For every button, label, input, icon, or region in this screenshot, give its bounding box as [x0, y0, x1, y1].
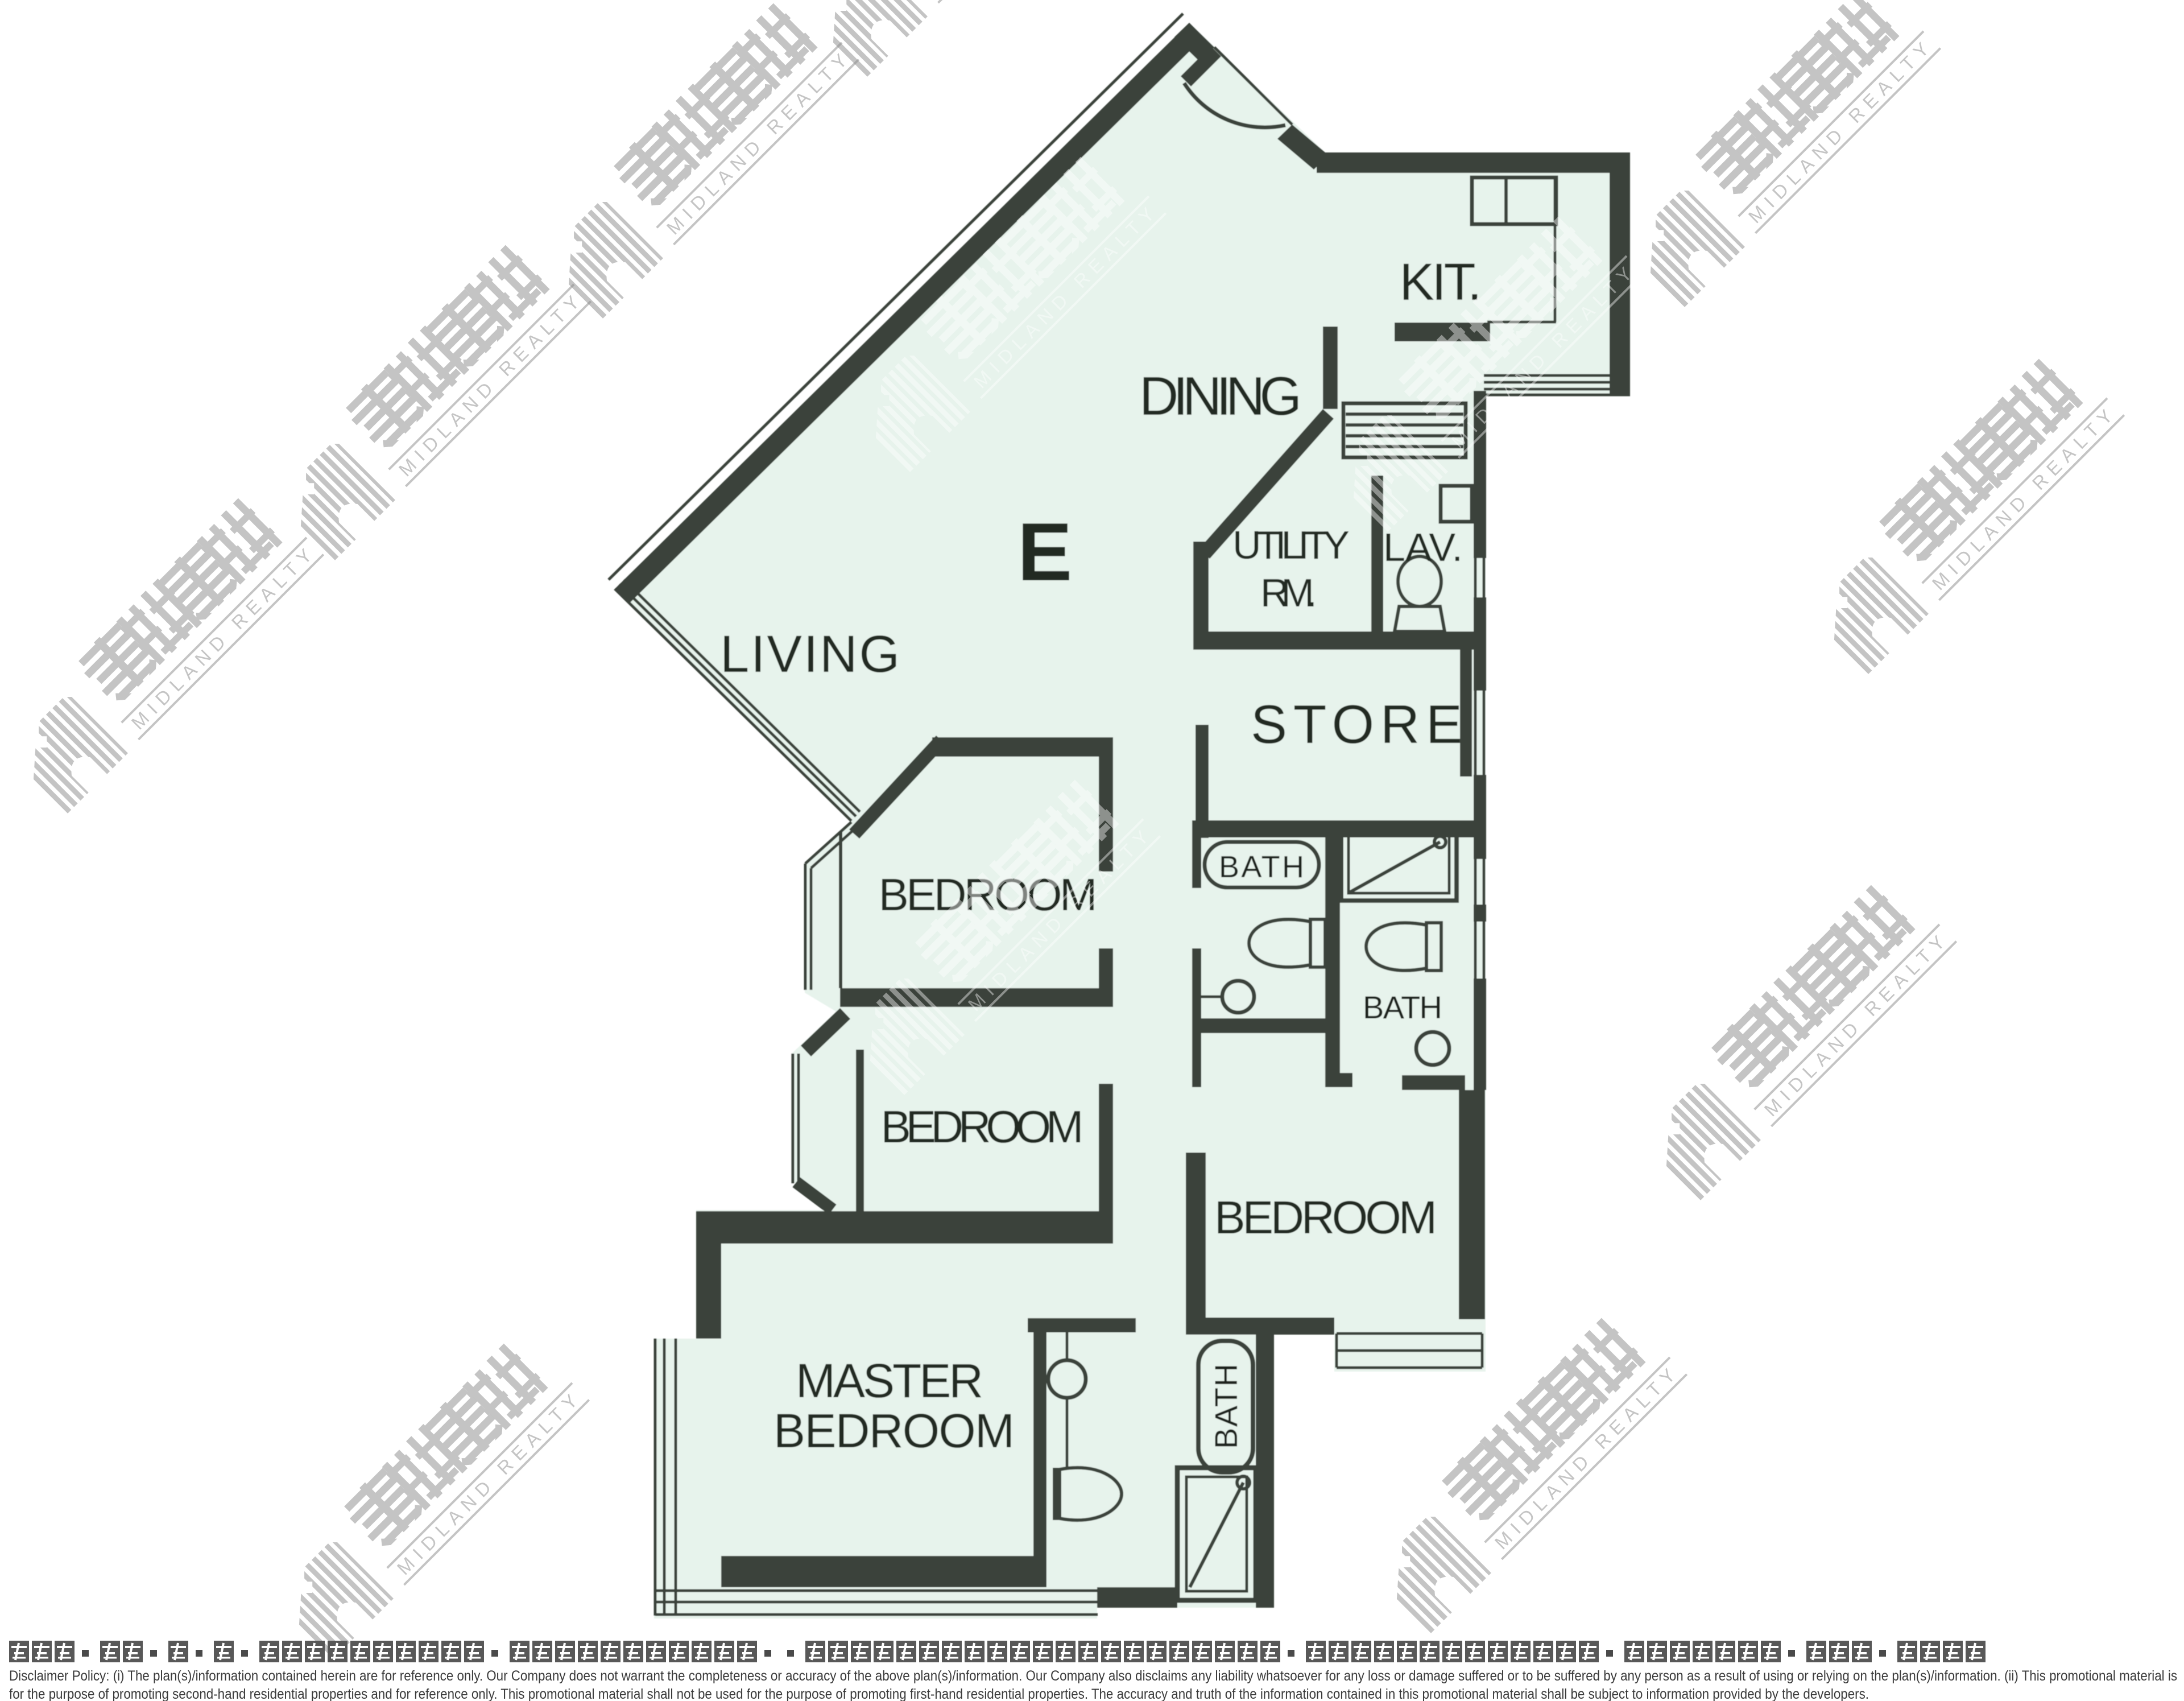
svg-text:MASTER: MASTER — [796, 1354, 983, 1407]
svg-text:BEDROOM: BEDROOM — [881, 1101, 1084, 1152]
svg-text:BEDROOM: BEDROOM — [1214, 1192, 1437, 1244]
svg-text:E: E — [1017, 506, 1073, 598]
svg-text:STORE: STORE — [1251, 694, 1462, 755]
svg-text:Disclaimer Policy: (i) The pla: Disclaimer Policy: (i) The plan(s)/infor… — [9, 1668, 2177, 1684]
svg-text:BATH: BATH — [1219, 850, 1304, 884]
svg-text:BATH: BATH — [1363, 989, 1442, 1025]
svg-text:KIT.: KIT. — [1400, 253, 1482, 311]
svg-text:BEDROOM: BEDROOM — [773, 1404, 1015, 1458]
svg-text:UTILITY: UTILITY — [1232, 523, 1350, 567]
svg-text:for the purpose of promoting s: for the purpose of promoting second-hand… — [9, 1686, 1869, 1701]
svg-text:BATH: BATH — [1208, 1364, 1244, 1449]
svg-text:LIVING: LIVING — [720, 625, 900, 683]
svg-text:LAV.: LAV. — [1383, 525, 1463, 569]
svg-text:RM.: RM. — [1260, 571, 1317, 615]
svg-text:DINING: DINING — [1139, 366, 1302, 427]
